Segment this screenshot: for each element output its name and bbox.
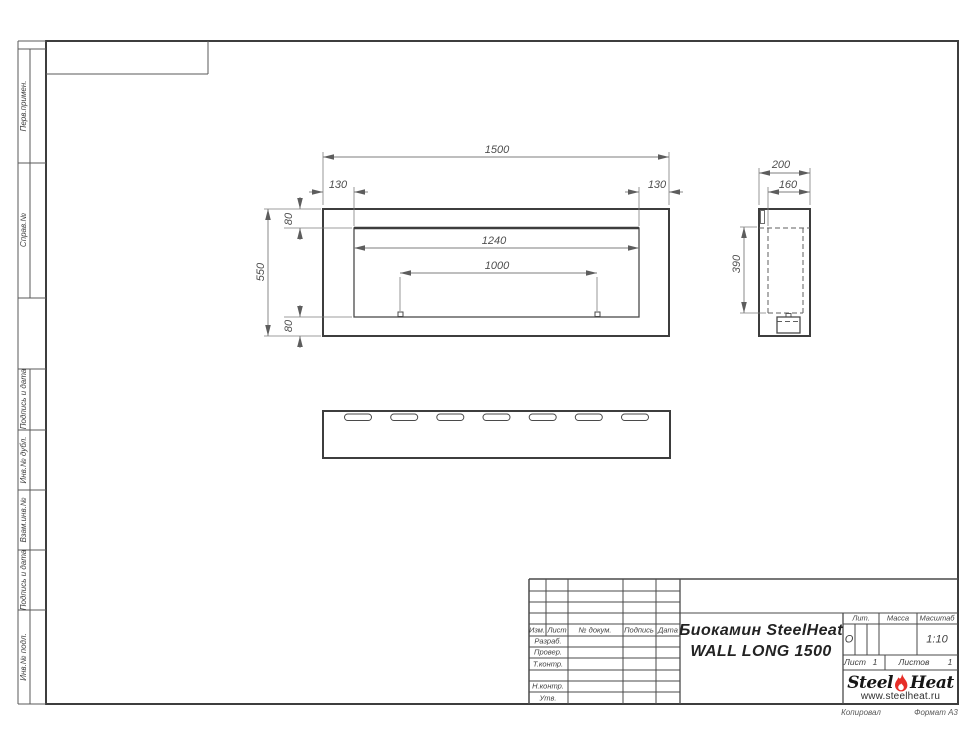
logo-word-steel: Steel (847, 673, 893, 693)
margin-label-sprav-no: Справ.№ (20, 213, 28, 247)
logo-word-heat: Heat (910, 673, 954, 693)
dim-offset-right: 130 (648, 179, 667, 191)
dim-total-height: 550 (255, 262, 267, 281)
margin-label-vzam-inv: Взам.инв.№ (20, 497, 28, 542)
tb-row-nkontr: Н.контр. (532, 682, 564, 690)
flame-icon (894, 674, 909, 692)
dim-offset-left: 130 (329, 179, 348, 191)
tb-sheet-number: 1 (873, 658, 878, 667)
footer-copy-note: Копировал (841, 709, 881, 717)
tb-sheet-label: Лист (844, 658, 866, 667)
top-left-box (46, 41, 208, 74)
drawing-sheet: 1500 130 130 1240 1000 550 80 80 200 160… (0, 0, 970, 749)
dim-bottom-gap: 80 (283, 319, 295, 332)
front-view (323, 209, 669, 336)
tb-sheets-total: 1 (948, 658, 953, 667)
tb-lit-label: Лит. (852, 614, 870, 622)
dim-total-width: 1500 (485, 144, 510, 156)
tb-sheets-label: Листов (899, 658, 930, 667)
tb-product-name-line2: WALL LONG 1500 (690, 644, 831, 660)
tb-lit-value: О (845, 635, 854, 646)
tb-mass-label: Масса (887, 614, 909, 622)
tb-scale-value: 1:10 (926, 635, 947, 646)
logo-website: www.steelheat.ru (861, 691, 940, 702)
dim-opening-width: 1240 (482, 235, 507, 247)
side-view (759, 209, 810, 336)
vent-slots (345, 414, 649, 421)
tb-header-list: Лист (547, 626, 566, 634)
footer-format-note: Формат А3 (914, 709, 958, 717)
tb-header-doc-no: № докум. (578, 626, 611, 634)
tb-header-izm: Изм. (529, 626, 545, 634)
margin-label-podpis-data-1: Подпись и дата (20, 369, 28, 430)
margin-label-podpis-data-2: Подпись и дата (20, 550, 28, 611)
tb-row-razrab: Разраб. (534, 637, 561, 645)
margin-label-inv-dubl: Инв.№ дубл. (20, 437, 28, 484)
frame (18, 41, 958, 704)
tb-row-tkontr: Т.контр. (533, 660, 563, 668)
tb-scale-label: Масштаб (919, 614, 954, 622)
margin-label-inv-podl: Инв.№ подл. (20, 633, 28, 680)
tb-header-date: Дата (658, 626, 678, 634)
dim-depth: 200 (771, 159, 791, 171)
vent-view (323, 411, 670, 458)
tb-header-signature: Подпись (624, 626, 654, 634)
dimension-lines (268, 157, 810, 348)
dim-burner-length: 1000 (485, 260, 510, 272)
margin-label-perv-primen: Перв.примен. (20, 81, 28, 132)
tb-row-prover: Провер. (534, 648, 562, 656)
steelheat-logo: Steel Heat www.steelheat.ru (844, 671, 957, 703)
tb-row-utv: Утв. (539, 694, 556, 702)
tb-product-name-line1: Биокамин SteelHeat (679, 623, 843, 639)
dim-inner-height: 390 (731, 254, 743, 273)
dim-inner-depth: 160 (779, 179, 798, 191)
dim-top-gap: 80 (283, 212, 295, 225)
